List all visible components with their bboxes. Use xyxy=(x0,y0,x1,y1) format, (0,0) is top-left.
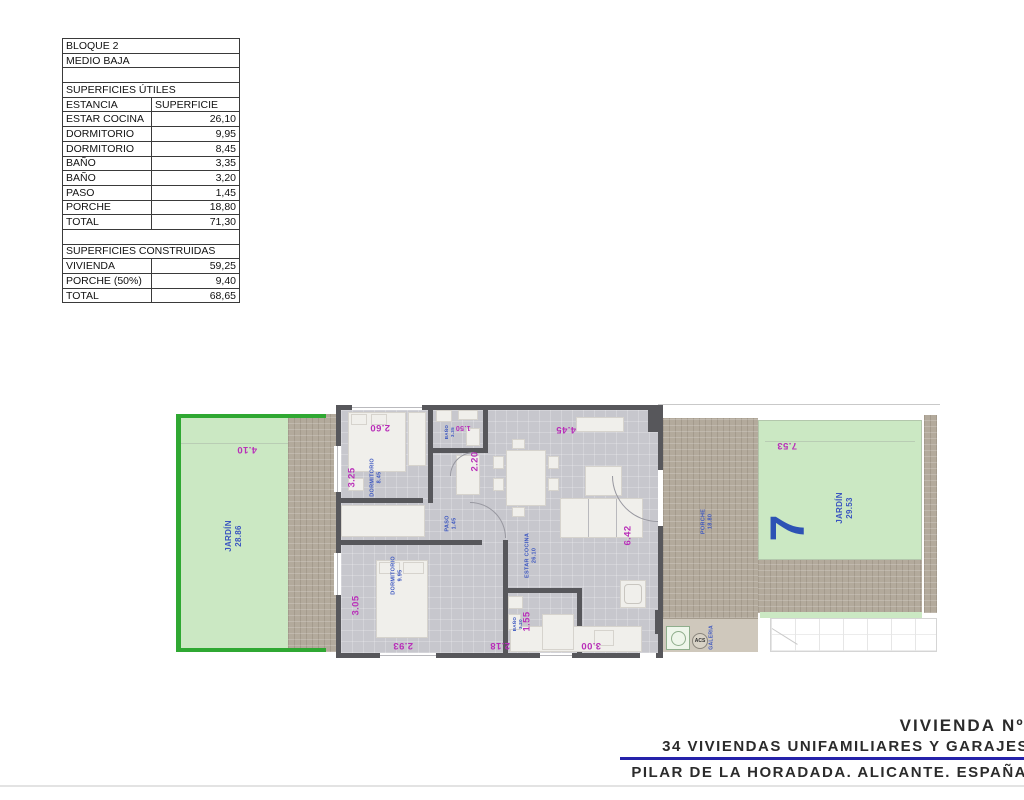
wall xyxy=(503,588,577,593)
right-paved-strip xyxy=(924,415,937,613)
table-row-total: TOTAL68,65 xyxy=(63,289,239,303)
table-row: BAÑO3,35 xyxy=(63,157,239,172)
surfaces-table: BLOQUE 2 MEDIO BAJA SUPERFICIES ÚTILES E… xyxy=(62,38,240,303)
porch-label: PORCHE18.80 xyxy=(701,491,716,551)
dorm2-label: DORMITORIO9.95 xyxy=(391,545,406,605)
living-height-dim: 6.42 xyxy=(623,506,634,566)
sheet-bottom-rule xyxy=(0,785,1024,787)
chair xyxy=(548,456,559,469)
table-row: ESTAR COCINA26,10 xyxy=(63,112,239,127)
garden-left-fence xyxy=(176,414,326,418)
table-row: PORCHE18,80 xyxy=(63,201,239,216)
table-row-total: TOTAL71,30 xyxy=(63,215,239,230)
bath1-depth-dim: 2.20 xyxy=(470,432,481,492)
garden-right-dimension: 7.53 xyxy=(757,440,817,451)
window-glass-line xyxy=(337,553,338,595)
garden-left-fence xyxy=(176,648,326,652)
chair xyxy=(512,439,525,449)
table-row: BLOQUE 2 xyxy=(63,39,239,54)
title-blue-rule xyxy=(620,757,1024,760)
wardrobe xyxy=(408,412,426,466)
window-glass-line xyxy=(540,655,572,656)
galeria-label: GALERIA xyxy=(709,607,716,667)
closet xyxy=(341,505,425,537)
living-bottom-dim: 3.00 xyxy=(561,640,621,651)
dorm2-bottom-dim: 2.93 xyxy=(373,640,433,651)
window-glass-line xyxy=(337,446,338,492)
chair xyxy=(512,507,525,517)
table-row-empty xyxy=(63,68,239,83)
living-width-dim: 4.45 xyxy=(536,424,596,435)
sofa-cushion-line xyxy=(588,499,589,537)
garden-left-fence xyxy=(176,414,181,652)
garden-left-dimension: 4.10 xyxy=(217,444,277,455)
wall-corner xyxy=(648,408,663,432)
bath1-label: BAÑO3.35 xyxy=(444,402,456,462)
dorm1-depth-dim: 3.25 xyxy=(347,448,358,508)
chair xyxy=(493,456,504,469)
terrace-tiles xyxy=(770,618,937,652)
dining-table xyxy=(506,450,546,506)
window-glass-line xyxy=(352,407,422,408)
right-paved-area xyxy=(758,560,922,613)
paso-label: PASO1.45 xyxy=(445,493,460,553)
table-row: BAÑO3,20 xyxy=(63,171,239,186)
living-label: ESTAR COCINA26.10 xyxy=(525,525,540,585)
dorm2-depth-dim: 3.05 xyxy=(351,576,362,636)
table-row: VIVIENDA59,25 xyxy=(63,259,239,274)
block-title: BLOQUE 2 xyxy=(63,40,239,52)
table-section-header: SUPERFICIES ÚTILES xyxy=(63,83,239,98)
pillow xyxy=(403,562,424,574)
garden-left-label: JARDÍN28.86 xyxy=(224,506,244,566)
chair xyxy=(493,478,504,491)
plan-sheet: BLOQUE 2 MEDIO BAJA SUPERFICIES ÚTILES E… xyxy=(0,0,1024,800)
door-opening xyxy=(640,653,656,658)
table-row: PORCHE (50%)9,40 xyxy=(63,274,239,289)
table-row: PASO1,45 xyxy=(63,186,239,201)
unit-number: 7 xyxy=(765,508,813,548)
table-row-empty xyxy=(63,230,239,245)
washer-drum-icon xyxy=(671,631,686,646)
floor-title: MEDIO BAJA xyxy=(63,55,239,67)
basin xyxy=(624,584,642,604)
table-row: DORMITORIO9,95 xyxy=(63,127,239,142)
table-section-header: SUPERFICIES CONSTRUIDAS xyxy=(63,245,239,260)
site-boundary-line xyxy=(658,404,940,405)
washing-machine-icon xyxy=(666,626,690,650)
chair xyxy=(548,478,559,491)
wall xyxy=(483,410,488,453)
wall-stub xyxy=(655,610,663,634)
project-location: PILAR DE LA HORADADA. ALICANTE. ESPAÑA xyxy=(631,764,1024,781)
project-unit-title: VIVIENDA Nº7 xyxy=(900,716,1024,736)
dorm1-width-dim: 2.60 xyxy=(350,422,410,433)
bath1-width-dim: 1.50 xyxy=(433,424,493,431)
garden-right-label: JARDÍN29.53 xyxy=(835,478,855,538)
sink xyxy=(458,410,478,420)
table-row: MEDIO BAJA xyxy=(63,54,239,69)
wall xyxy=(336,540,482,545)
table-row: DORMITORIO8,45 xyxy=(63,142,239,157)
window-glass-line xyxy=(380,655,436,656)
sofa-cushion-line xyxy=(616,499,617,537)
table-column-header: ESTANCIA SUPERFICIE xyxy=(63,98,239,113)
bath2-bottom-dim: 2.18 xyxy=(470,640,530,651)
acs-water-heater-icon: ACS xyxy=(692,633,708,649)
project-name: 34 VIVIENDAS UNIFAMILIARES Y GARAJES xyxy=(662,738,1024,755)
dorm1-label: DORMITORIO8.45 xyxy=(370,447,385,507)
